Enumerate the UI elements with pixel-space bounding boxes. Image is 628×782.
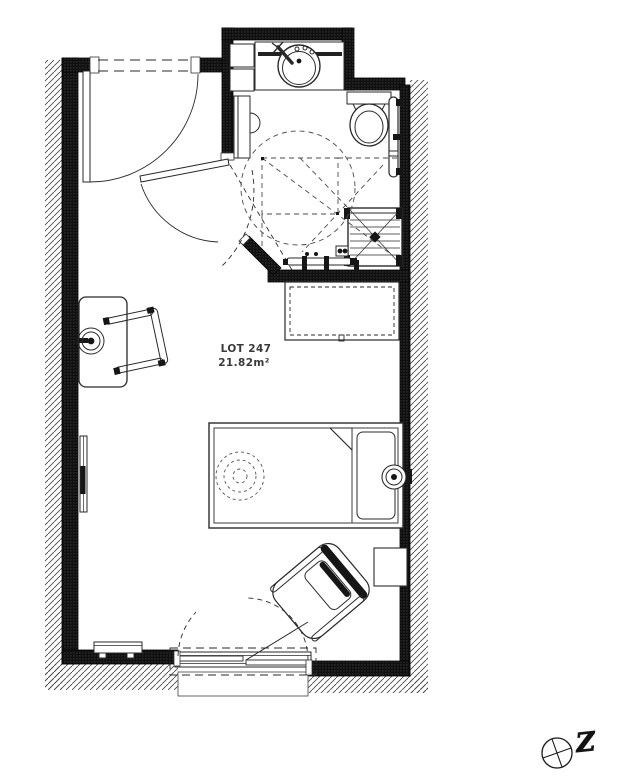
hatch-band-right <box>410 80 428 693</box>
shelf-unit <box>230 44 254 67</box>
bench-foot <box>99 653 106 658</box>
door-jamb <box>90 57 99 73</box>
floor-plan-drawing: LOT 247 21.82m² Z <box>0 0 628 782</box>
hatch-band-bottom-left <box>45 664 178 690</box>
toilet-cistern <box>347 92 391 104</box>
wardrobe <box>285 282 399 341</box>
turning-circle-dashed <box>241 131 355 245</box>
window-sash <box>179 656 243 661</box>
entrance-door <box>83 60 198 182</box>
grab-bar-bracket <box>396 99 403 106</box>
entrance-door-leaf <box>83 71 90 182</box>
basin-drain-dot <box>297 59 302 64</box>
bathroom-door-swing-arc <box>141 184 218 242</box>
door-jamb <box>191 57 200 73</box>
hatch-band-left <box>45 60 62 690</box>
radiator-bump <box>250 113 260 133</box>
toilet <box>347 92 391 146</box>
compass-north-letter: Z <box>574 727 598 759</box>
valve-knob <box>314 252 318 256</box>
chair-joint <box>146 306 154 313</box>
window-jamb <box>174 651 180 666</box>
entrance-door-swing-arc <box>90 74 198 182</box>
shelf-unit <box>230 69 254 91</box>
valve-knob <box>305 252 309 256</box>
projection-corner-dot <box>336 212 339 215</box>
grab-bar-leg <box>324 256 329 270</box>
lounge-area <box>267 538 407 644</box>
lamp-bracket <box>407 469 412 484</box>
chair-joint <box>158 359 166 366</box>
radiator-core <box>81 466 86 494</box>
wall-bottom-right <box>308 661 410 676</box>
window-sash <box>246 660 308 665</box>
wall-step-top <box>342 78 405 90</box>
shower-tray <box>344 208 402 266</box>
side-table <box>374 548 407 586</box>
lot-area-label: 21.82m² <box>218 357 270 369</box>
grab-bar-bracket <box>393 134 402 140</box>
lot-number-label: LOT 247 <box>221 343 272 355</box>
shower-post <box>396 255 402 266</box>
grab-bar-bracket <box>396 168 403 175</box>
bench-foot <box>127 653 134 658</box>
toilet-bowl-outer <box>350 104 388 146</box>
lot-label-group: LOT 247 21.82m² <box>218 343 271 369</box>
bathroom-door <box>140 159 292 270</box>
grab-bar-elbow <box>354 260 359 272</box>
grab-bar-clamp <box>389 151 398 156</box>
grab-bar-endcap <box>283 259 288 265</box>
wall-left <box>62 58 78 664</box>
grab-bar-horizontal <box>283 246 359 272</box>
desk-area <box>75 297 169 387</box>
bathroom <box>230 42 403 272</box>
hatch-band-bottom-right <box>308 676 428 693</box>
wall-bath-bottom <box>268 270 410 282</box>
desk-lamp-arm <box>75 338 88 343</box>
bathroom-door-leaf <box>140 159 229 182</box>
mixer-knob <box>338 249 343 254</box>
window-swing-arc-dashed <box>178 612 196 656</box>
desk-lamp-dot <box>88 338 95 345</box>
lamp-dot <box>391 474 397 480</box>
grab-bar-leg <box>302 256 307 270</box>
window-jamb <box>306 660 312 675</box>
window-sill <box>178 672 308 696</box>
north-compass: Z <box>542 727 598 768</box>
projection-corner-dot <box>261 157 264 160</box>
wall-bath-angled <box>241 236 281 275</box>
bed-frame <box>209 423 403 528</box>
wall-radiator <box>80 436 87 512</box>
bed <box>209 423 412 528</box>
shower-post <box>396 208 402 219</box>
mixer-knob <box>343 249 348 254</box>
floor-plan-page: LOT 247 21.82m² Z <box>0 0 628 782</box>
wall-bath-top <box>222 28 352 40</box>
towel-radiator <box>234 96 260 158</box>
armchair <box>267 538 375 644</box>
